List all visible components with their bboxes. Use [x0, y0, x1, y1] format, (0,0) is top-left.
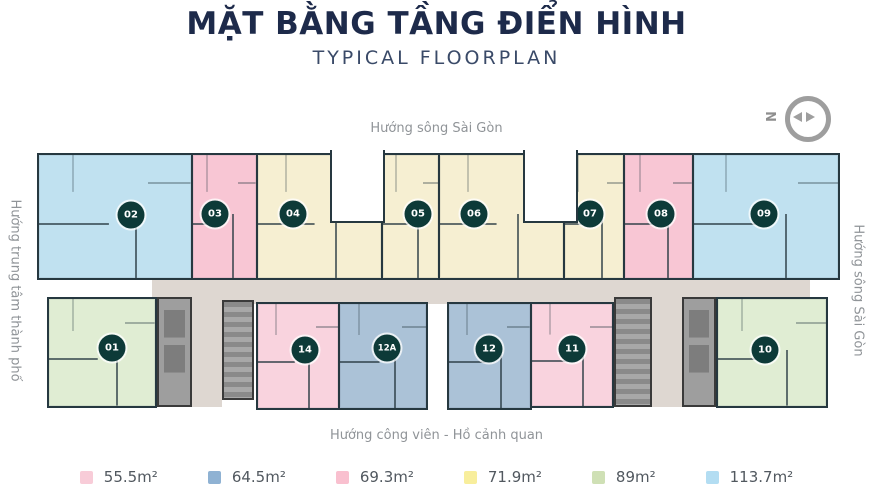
unit-badge-03: 03: [202, 201, 229, 228]
unit-badge-08: 08: [648, 201, 675, 228]
legend-swatch: [80, 471, 93, 484]
legend-label: 55.5m²: [104, 468, 158, 486]
unit-badge-14: 14: [292, 337, 319, 364]
legend-item: 89m²: [592, 468, 656, 486]
unit-badge-11: 11: [559, 336, 586, 363]
legend-label: 69.3m²: [360, 468, 414, 486]
unit-badge-07: 07: [577, 201, 604, 228]
unit-badge-12: 12: [476, 336, 503, 363]
legend-label: 64.5m²: [232, 468, 286, 486]
unit-badge-12A: 12A: [374, 335, 401, 362]
legend-item: 71.9m²: [464, 468, 542, 486]
legend-label: 89m²: [616, 468, 656, 486]
floorplan: 0203040506070809011412A121110: [0, 0, 873, 500]
unit-badge-05: 05: [405, 201, 432, 228]
legend-swatch: [336, 471, 349, 484]
service-core-elevator-right: [682, 297, 716, 407]
corridor-stub-left: [192, 278, 222, 407]
legend-item: 69.3m²: [336, 468, 414, 486]
unit-badge-04: 04: [280, 201, 307, 228]
legend-item: 113.7m²: [706, 468, 794, 486]
facade-notch-right: [523, 150, 578, 223]
corridor-stub-right: [652, 278, 682, 407]
service-core-stair-right: [614, 297, 652, 407]
unit-badge-01: 01: [99, 335, 126, 362]
unit-badge-10: 10: [752, 337, 779, 364]
legend-label: 71.9m²: [488, 468, 542, 486]
facade-notch-left: [330, 150, 385, 223]
service-core-stair-left: [222, 300, 254, 400]
service-core-elevator-left: [157, 297, 192, 407]
legend-swatch: [464, 471, 477, 484]
legend-swatch: [592, 471, 605, 484]
unit-badge-06: 06: [461, 201, 488, 228]
unit-badge-02: 02: [118, 202, 145, 229]
unit-02: [37, 153, 193, 280]
legend-swatch: [706, 471, 719, 484]
legend-label: 113.7m²: [730, 468, 794, 486]
unit-badge-09: 09: [751, 201, 778, 228]
legend-item: 64.5m²: [208, 468, 286, 486]
legend-swatch: [208, 471, 221, 484]
area-legend: 55.5m²64.5m²69.3m²71.9m²89m²113.7m²: [0, 468, 873, 486]
legend-item: 55.5m²: [80, 468, 158, 486]
floorplan-page: MẶT BẰNG TẦNG ĐIỂN HÌNH TYPICAL FLOORPLA…: [0, 0, 873, 500]
